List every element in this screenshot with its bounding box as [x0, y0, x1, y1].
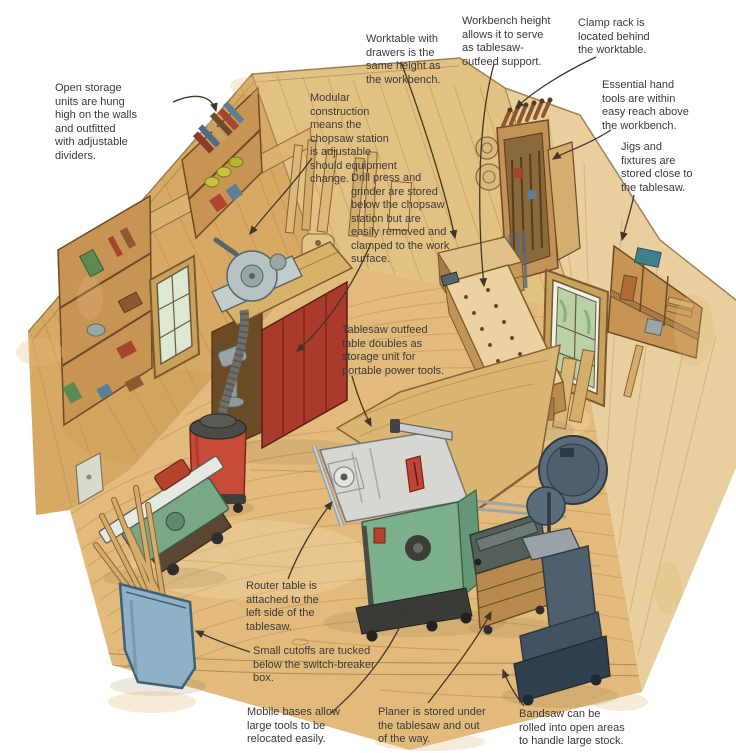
- annotation-text: Tablesaw outfeed table doubles as storag…: [342, 324, 444, 377]
- shop-illustration-page: Open storage units are hung high on the …: [0, 0, 736, 753]
- annotation-text: Mobile bases allow large tools to be rel…: [247, 706, 340, 745]
- annotation-text: Small cutoffs are tucked below the switc…: [253, 645, 375, 684]
- annotation-text: Bandsaw can be rolled into open areas to…: [519, 708, 625, 747]
- annotation-text: Workbench height allows it to serve as t…: [462, 15, 550, 68]
- annotation-text: Worktable with drawers is the same heigh…: [366, 33, 441, 86]
- annotation-bandsaw: Bandsaw can be rolled into open areas to…: [519, 708, 679, 749]
- annotation-workbench-height: Workbench height allows it to serve as t…: [462, 15, 587, 69]
- annotation-text: Drill press and grinder are stored below…: [351, 172, 449, 265]
- annotation-open-storage: Open storage units are hung high on the …: [55, 82, 175, 163]
- annotation-clamp-rack: Clamp rack is located behind the worktab…: [578, 17, 683, 58]
- annotation-essential-hand: Essential hand tools are within easy rea…: [602, 79, 727, 133]
- annotation-worktable: Worktable with drawers is the same heigh…: [366, 33, 476, 87]
- leader-open-storage: [173, 96, 216, 111]
- annotation-jigs-fixtures: Jigs and fixtures are stored close to th…: [621, 141, 731, 195]
- annotation-text: Jigs and fixtures are stored close to th…: [621, 141, 693, 194]
- annotation-drill-press: Drill press and grinder are stored below…: [351, 172, 496, 267]
- annotation-mobile-bases: Mobile bases allow large tools to be rel…: [247, 706, 382, 747]
- annotation-text: Essential hand tools are within easy rea…: [602, 79, 689, 132]
- annotation-planer: Planer is stored under the tablesaw and …: [378, 706, 533, 747]
- annotation-text: Open storage units are hung high on the …: [55, 82, 137, 162]
- annotation-text: Clamp rack is located behind the worktab…: [578, 17, 650, 56]
- annotation-text: Planer is stored under the tablesaw and …: [378, 706, 486, 745]
- annotation-tablesaw-outfeed: Tablesaw outfeed table doubles as storag…: [342, 324, 497, 378]
- annotation-router-table: Router table is attached to the left sid…: [246, 580, 356, 634]
- annotation-small-cutoffs: Small cutoffs are tucked below the switc…: [253, 645, 433, 686]
- annotation-text: Router table is attached to the left sid…: [246, 580, 319, 633]
